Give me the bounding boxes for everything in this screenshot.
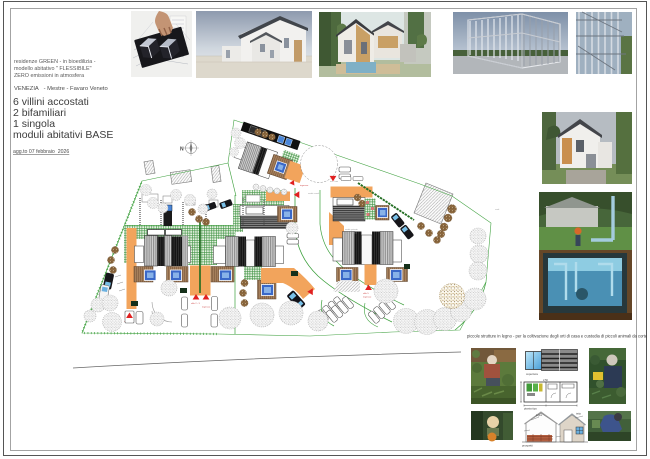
svg-text:villa 5: villa 5 [363,293,369,295]
svg-text:acc. box: acc. box [330,181,339,183]
svg-text:ingresso: ingresso [300,184,309,187]
svg-text:villa 2 - 3: villa 2 - 3 [191,303,201,305]
svg-text:residenze GREEN - in bioediliz: residenze GREEN - in bioedilizia - [14,59,96,65]
svg-text:copertura: copertura [526,372,538,376]
svg-text:VENEZIA - Mestre - Favaro Ve: VENEZIA - Mestre - Favaro Veneto [14,86,108,92]
svg-text:piccole strutture in legno - p: piccole strutture in legno - per la colt… [467,334,648,339]
svg-text:ingresso: ingresso [202,306,211,309]
svg-text:moduli abitativi BASE: moduli abitativi BASE [13,129,113,141]
svg-text:agg.to 07 febbraio 2026: agg.to 07 febbraio 2026 [13,149,69,155]
svg-text:N: N [180,147,184,153]
svg-text:uso comune: uso comune [345,233,358,235]
svg-text:legno: legno [536,414,543,417]
svg-text:conf.: conf. [495,209,500,211]
svg-text:prospetti: prospetti [522,444,533,448]
svg-text:ZERO emissioni in atmosfera: ZERO emissioni in atmosfera [14,73,84,79]
svg-text:verde privato: verde privato [345,228,358,231]
svg-text:verde cond.: verde cond. [308,192,320,195]
svg-text:modello abitativo " FLESSIBILE: modello abitativo " FLESSIBILE" [14,66,92,72]
svg-text:tetto: tetto [576,413,581,416]
svg-text:ingresso: ingresso [363,296,372,299]
svg-text:2,50: 2,50 [543,379,548,382]
svg-text:pianta tipo: pianta tipo [524,407,537,411]
